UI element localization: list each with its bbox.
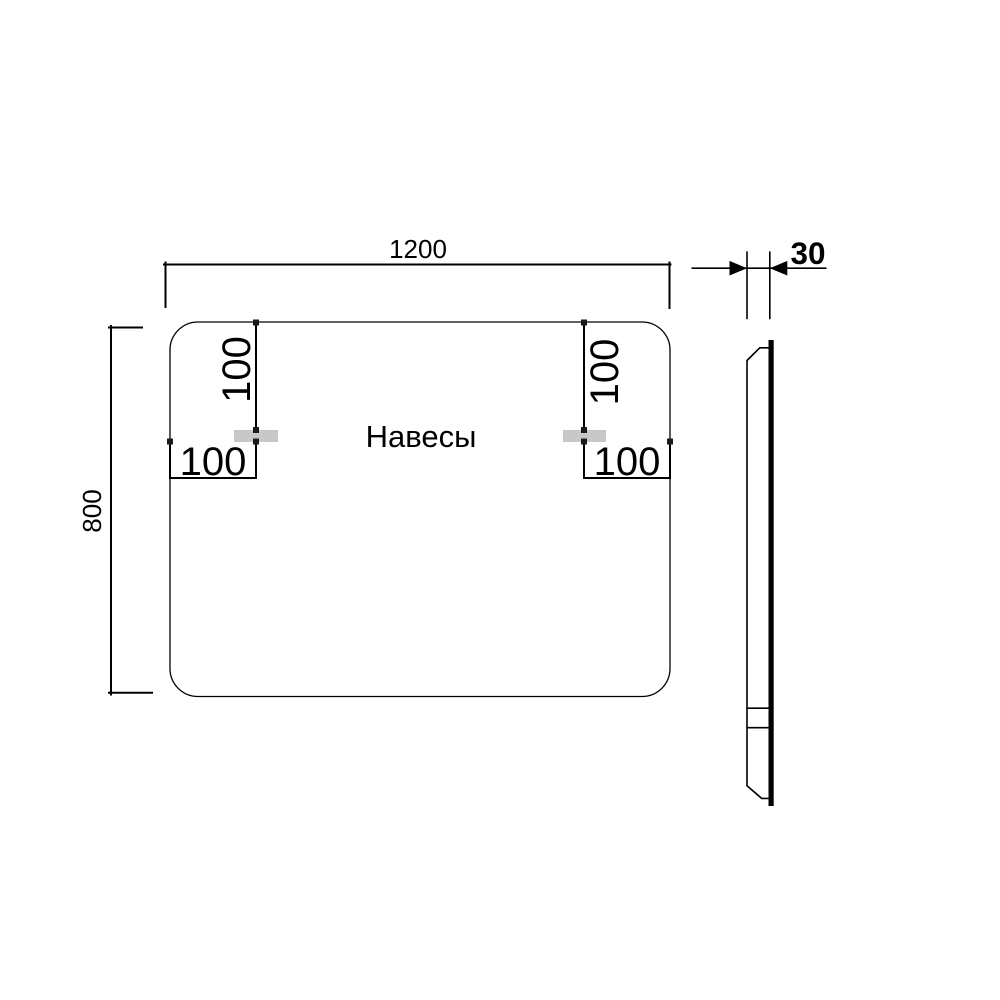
svg-text:100: 100 — [583, 339, 627, 406]
svg-text:100: 100 — [180, 440, 247, 484]
svg-text:Навесы: Навесы — [366, 419, 477, 454]
svg-text:1200: 1200 — [389, 234, 447, 264]
svg-text:100: 100 — [594, 440, 661, 484]
svg-text:30: 30 — [790, 235, 825, 271]
svg-text:800: 800 — [77, 489, 107, 532]
svg-text:100: 100 — [215, 336, 259, 403]
